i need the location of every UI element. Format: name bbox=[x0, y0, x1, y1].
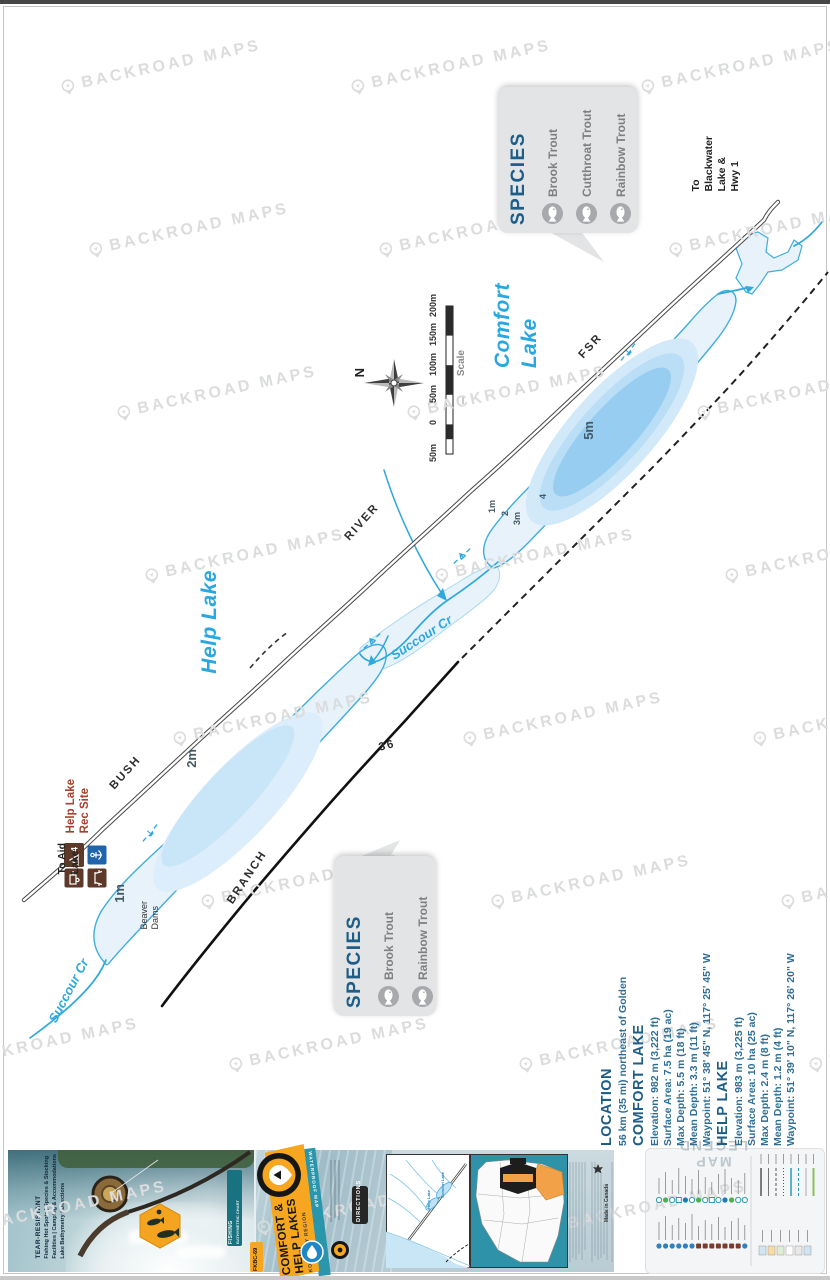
legend-mark bbox=[736, 1197, 741, 1202]
legend-mark bbox=[742, 1243, 747, 1248]
legend-mark bbox=[786, 1246, 793, 1255]
legend-mark bbox=[696, 1244, 701, 1249]
map-code: FKBC-69 bbox=[251, 1243, 261, 1271]
legend-mark bbox=[670, 1243, 675, 1248]
inset-help-lake-label: Help Lake bbox=[426, 1190, 431, 1209]
location-info-block: LOCATION56 km (35 mi) northeast of Golde… bbox=[598, 948, 802, 1146]
species-name: Brook Trout bbox=[382, 912, 396, 980]
lake-stat: Mean Depth: 3.3 m (11 ft) bbox=[688, 948, 701, 1146]
sheet-edge-top bbox=[0, 0, 830, 4]
species-callout-tail bbox=[540, 228, 610, 268]
road-bush-river-fsr bbox=[24, 202, 778, 900]
inset-comfort-lake-label: Comfort Lake bbox=[440, 1172, 445, 1198]
fish-icon bbox=[610, 202, 633, 225]
ribbon-line1: FISHING bbox=[228, 1172, 235, 1244]
back-cover-feature: Lake Bathymetry | Directions bbox=[59, 1154, 67, 1259]
location-title: LOCATION bbox=[598, 948, 617, 1146]
location-text: 56 km (35 mi) northeast of Golden bbox=[617, 948, 630, 1146]
back-cover-tagline: TEAR-RESISTANT bbox=[34, 1154, 43, 1259]
legend-mark bbox=[768, 1246, 775, 1255]
legend-mark bbox=[689, 1243, 694, 1248]
lake-stat: Elevation: 982 m (3,222 ft) bbox=[649, 948, 662, 1146]
rec-site-icons: 4 bbox=[64, 843, 107, 888]
legend-mark bbox=[716, 1244, 721, 1249]
species-title: SPECIES bbox=[338, 866, 372, 1008]
lake-stat: Elevation: 983 m (3,225 ft) bbox=[733, 948, 746, 1146]
legend-mark bbox=[795, 1246, 802, 1255]
water-drop-badge bbox=[300, 1240, 324, 1264]
fish-icon bbox=[576, 202, 599, 225]
pond bbox=[736, 232, 802, 294]
fish-icon bbox=[378, 985, 401, 1008]
lake-stat: Surface Area: 7.5 ha (19 ac) bbox=[662, 948, 675, 1146]
directions-label: DIRECTIONS bbox=[354, 1188, 365, 1222]
map-code-chip: FKBC-69 bbox=[250, 1242, 263, 1272]
legend-mark bbox=[729, 1197, 734, 1202]
legend-mark bbox=[722, 1197, 727, 1202]
lake-stat: Waypoint: 51° 39' 10" N, 117° 26' 20" W bbox=[785, 948, 798, 1146]
anchor-boat-launch-icon bbox=[88, 846, 107, 865]
legend-mark bbox=[759, 1246, 766, 1255]
species-name: Rainbow Trout bbox=[614, 114, 628, 197]
directions-tab: DIRECTIONS bbox=[352, 1186, 368, 1224]
made-in-canada: Made in Canada bbox=[604, 1184, 611, 1222]
fishing-chart-ribbon: FISHING BATHYMETRIC CHART bbox=[227, 1170, 242, 1246]
fish-icon bbox=[412, 985, 435, 1008]
legend-mark bbox=[716, 1197, 721, 1202]
back-cover-feature: Fishing Hot Spots | Species & Stocking bbox=[43, 1154, 51, 1259]
small-badge bbox=[330, 1240, 350, 1260]
species-item: Brook Trout bbox=[372, 866, 406, 1008]
species-item: Rainbow Trout bbox=[604, 97, 638, 225]
map-legend-symbols bbox=[645, 1148, 825, 1274]
legend-mark bbox=[742, 1197, 747, 1202]
legend-mark bbox=[696, 1197, 701, 1202]
sheet-edge-bottom bbox=[0, 1276, 830, 1280]
north-compass-rose bbox=[364, 359, 424, 407]
back-cover-text: TEAR-RESISTANTFishing Hot Spots | Specie… bbox=[34, 1154, 67, 1259]
species-item: Rainbow Trout bbox=[406, 866, 440, 1008]
directions-inset-map bbox=[386, 1154, 470, 1268]
legend-mark bbox=[703, 1197, 708, 1202]
trailer-icon bbox=[65, 869, 84, 888]
lake-stat: Mean Depth: 1.2 m (4 ft) bbox=[772, 948, 785, 1146]
legend-mark bbox=[663, 1197, 668, 1202]
species-name: Brook Trout bbox=[546, 129, 560, 197]
lake-stat: Max Depth: 5.5 m (18 ft) bbox=[675, 948, 688, 1146]
species-callout-help: SPECIESBrook TroutRainbow Trout bbox=[334, 856, 436, 1016]
legend-mark bbox=[709, 1244, 714, 1249]
species-callout-comfort: SPECIESBrook TroutCutthroat TroutRainbow… bbox=[498, 87, 638, 233]
legend-mark bbox=[676, 1243, 681, 1248]
legend-mark bbox=[656, 1243, 661, 1248]
lake-stats-title: HELP LAKE bbox=[714, 948, 733, 1146]
species-title: SPECIES bbox=[502, 97, 536, 225]
legend-mark bbox=[683, 1243, 688, 1248]
map-sheet: 4 BACKROAD MAPSBACKROAD bbox=[0, 0, 830, 1280]
fish-icon bbox=[542, 202, 565, 225]
lake-stat: Waypoint: 51° 38' 45" N, 117° 25' 45" W bbox=[701, 948, 714, 1146]
legend-mark bbox=[729, 1244, 734, 1249]
campsite-count: 4 bbox=[70, 847, 80, 852]
legend-mark bbox=[777, 1246, 784, 1255]
backroad-mapbooks-logo bbox=[256, 1152, 302, 1198]
picnic-table-icon bbox=[88, 869, 107, 888]
species-name: Rainbow Trout bbox=[416, 897, 430, 980]
legend-mark bbox=[703, 1244, 708, 1249]
legend-mark bbox=[656, 1197, 661, 1202]
species-item: Brook Trout bbox=[536, 97, 570, 225]
ribbon-line2: BATHYMETRIC CHART bbox=[235, 1172, 241, 1244]
back-cover-photo: TEAR-RESISTANTFishing Hot Spots | Specie… bbox=[8, 1150, 254, 1272]
region-inset-map bbox=[470, 1154, 568, 1268]
species-name: Cutthroat Trout bbox=[580, 110, 594, 197]
back-cover-feature: Facilities | Camping & Accommodations bbox=[51, 1154, 59, 1259]
legend-mark bbox=[683, 1197, 688, 1202]
contact-fine-print bbox=[328, 1156, 342, 1226]
legend-mark bbox=[663, 1243, 668, 1248]
legend-mark bbox=[723, 1244, 728, 1249]
lake-stat: Surface Area: 10 ha (25 ac) bbox=[746, 948, 759, 1146]
lake-stat: Max Depth: 2.4 m (8 ft) bbox=[759, 948, 772, 1146]
legend-mark bbox=[676, 1198, 681, 1203]
scale-bar bbox=[446, 306, 463, 454]
legend-mark bbox=[709, 1198, 714, 1203]
lake-stats-title: COMFORT LAKE bbox=[630, 948, 649, 1146]
boat-launch-icon bbox=[140, 341, 637, 843]
legend-mark bbox=[736, 1244, 741, 1249]
legend-mark bbox=[689, 1197, 694, 1202]
species-item: Cutthroat Trout bbox=[570, 97, 604, 225]
legend-mark bbox=[804, 1246, 811, 1255]
legend-mark bbox=[670, 1197, 675, 1202]
